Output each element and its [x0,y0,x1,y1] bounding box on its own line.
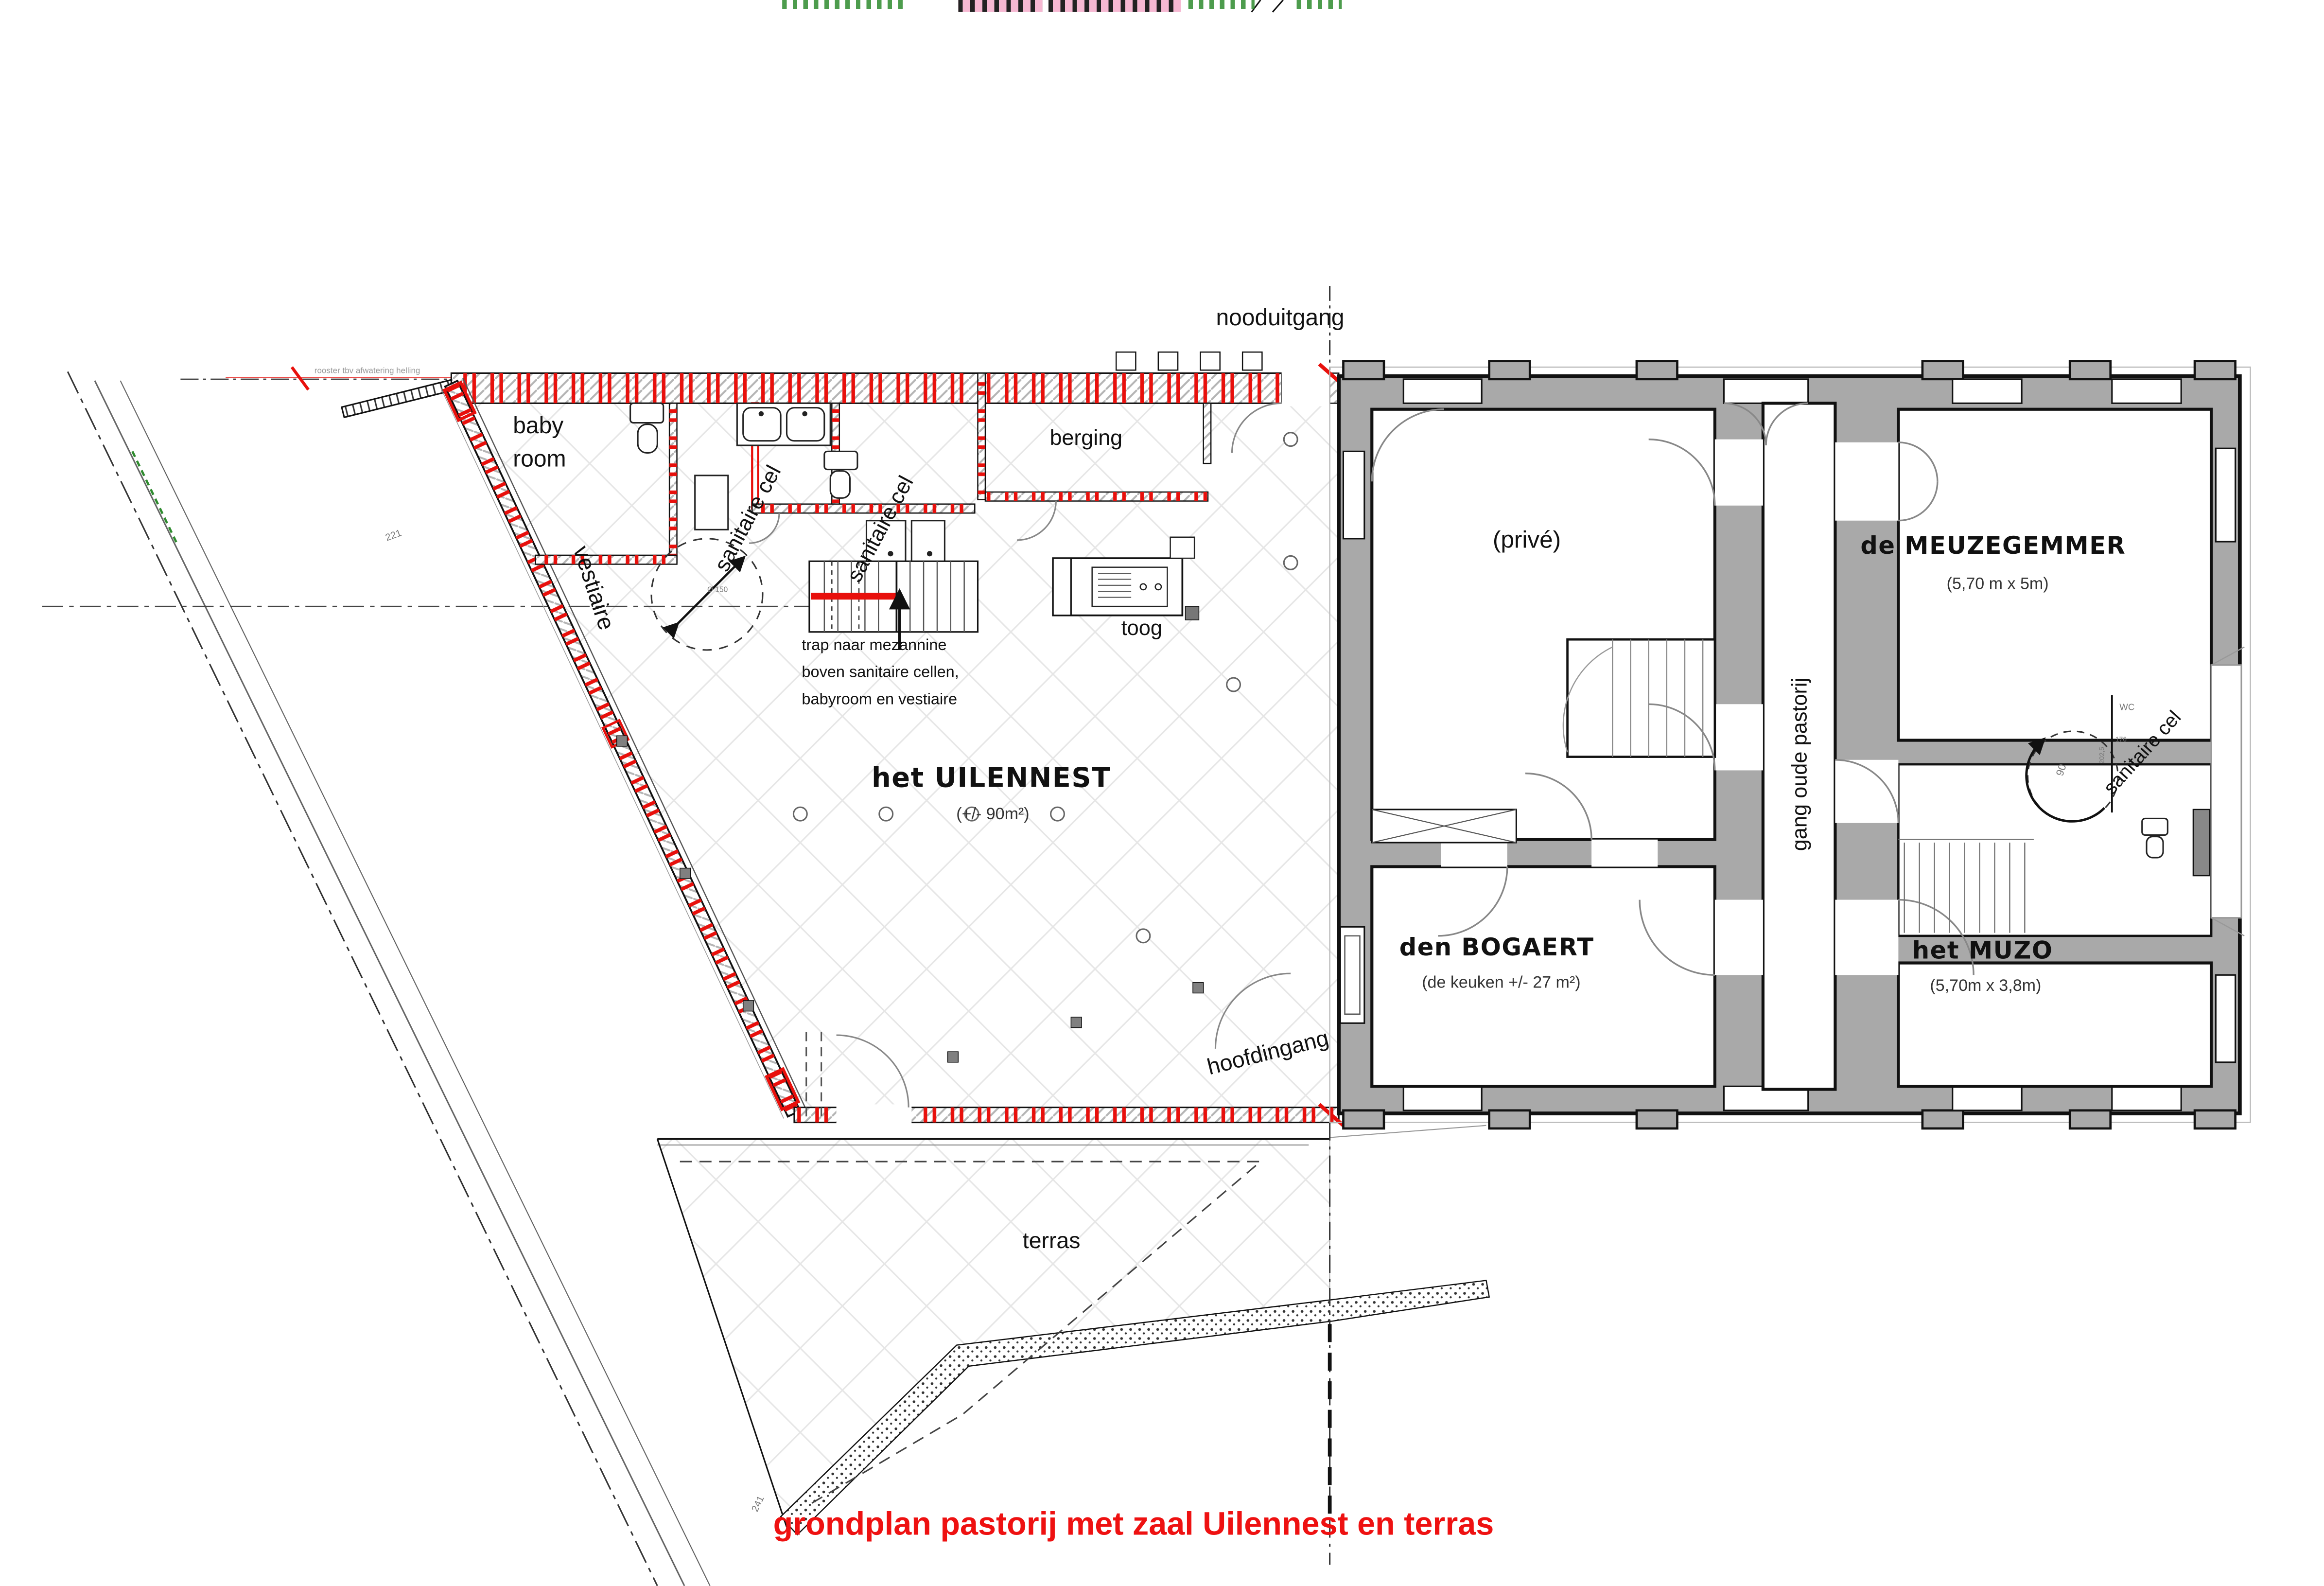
label-nooduitgang: nooduitgang [1216,307,1344,331]
label-stair-note-1: trap naar mezannine [802,638,946,653]
label-babyroom-2: room [513,448,566,472]
label-uilennest: het UILENNEST [872,766,1111,793]
truncated-text-fragment [1188,0,1255,9]
plan-geometry [0,0,2324,1586]
room-meuzegemmer [1898,409,2211,740]
label-stair-note-2: boven sanitaire cellen, [802,665,959,681]
truncated-text-fragment [1297,0,1342,9]
label-uilennest-area: (+/- 90m²) [956,807,1029,824]
label-wc: WC [2119,704,2134,713]
label-drain-note: rooster tbv afwatering helling [315,369,420,377]
label-meuzegemmer-dim: (5,70 m x 5m) [1947,577,2049,594]
label-bogaert-dim: (de keuken +/- 27 m²) [1422,976,1580,992]
label-corridor: gang oude pastorij [1788,678,1809,851]
truncated-text-fragment [958,0,1042,12]
stair-red-marker [811,593,898,599]
double-sink-icon [737,403,830,445]
label-prive: (privé) [1493,529,1561,554]
entrance-ramp [342,379,458,417]
terras-area [657,1123,1489,1565]
label-stair-note-3: babyroom en vestiaire [802,692,957,708]
plan-title: grondplan pastorij met zaal Uilennest en… [773,1509,1494,1542]
label-meuzegemmer: de MEUZEGEMMER [1860,534,2126,559]
truncated-text-fragment [782,0,906,9]
label-babyroom-1: baby [513,415,563,439]
shower-icon [695,476,728,529]
label-muzo-dim: (5,70m x 3,8m) [1930,979,2041,995]
uilennest-hall [42,286,1344,1126]
room-sanitair [1898,764,2211,936]
label-berging: berging [1049,428,1122,450]
label-toog: toog [1121,617,1162,638]
label-muzo: het MUZO [1912,939,2053,963]
closet-box [1372,810,1516,843]
label-bogaert: den BOGAERT [1399,936,1594,960]
radiator [2193,810,2210,876]
label-terras: terras [1023,1230,1081,1252]
north-wall [451,352,1339,406]
prive-stair [1563,639,1715,757]
label-dim-176: 176 [2115,737,2127,744]
floorplan-canvas: nooduitgang baby room vestiaire sanitair… [0,0,2324,1586]
floorplan-sheet: nooduitgang baby room vestiaire sanitair… [0,0,2324,1586]
truncated-text-fragment [1048,0,1181,12]
label-dim-2025: 202,5 [2099,747,2106,764]
label-turning-circle: Ø 150 [707,587,728,595]
